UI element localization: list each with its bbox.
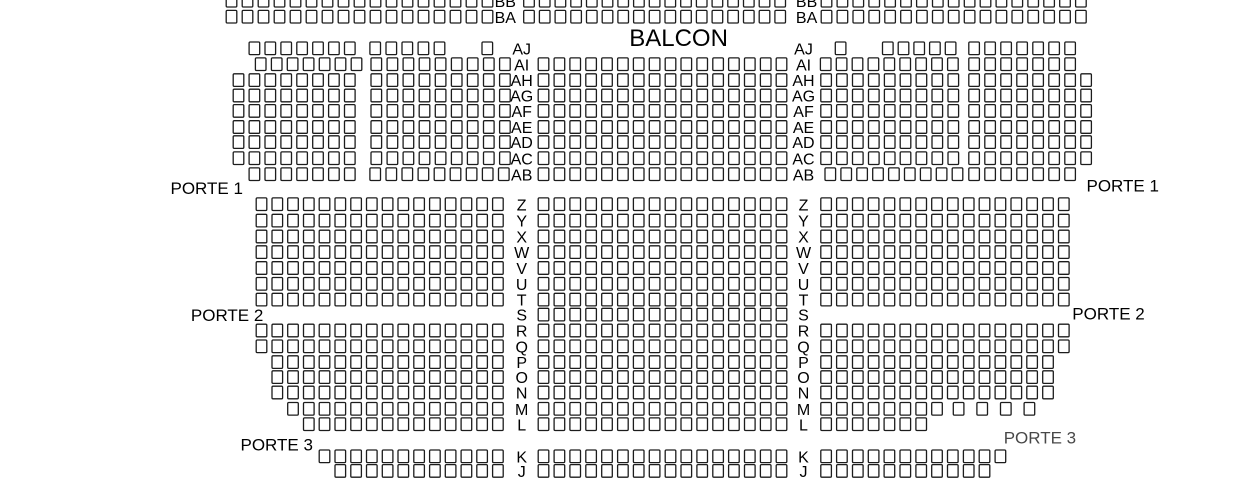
svg-text:Q: Q (515, 339, 527, 356)
svg-text:Z: Z (517, 197, 527, 214)
svg-text:AD: AD (511, 135, 533, 152)
svg-text:AC: AC (792, 151, 814, 168)
svg-text:S: S (516, 308, 527, 325)
svg-text:BA: BA (796, 10, 818, 27)
svg-text:PORTE 3: PORTE 3 (1004, 429, 1076, 448)
svg-text:L: L (799, 417, 808, 434)
svg-text:AB: AB (511, 167, 532, 184)
svg-text:Z: Z (799, 197, 809, 214)
svg-text:X: X (798, 230, 809, 247)
svg-text:V: V (798, 261, 809, 278)
svg-text:N: N (516, 386, 528, 403)
svg-text:R: R (516, 324, 528, 341)
svg-text:AJ: AJ (512, 41, 531, 58)
svg-text:BA: BA (495, 10, 517, 27)
svg-text:PORTE 2: PORTE 2 (191, 306, 263, 325)
svg-text:PORTE 1: PORTE 1 (171, 179, 243, 198)
svg-text:U: U (516, 277, 528, 294)
svg-text:W: W (514, 245, 530, 262)
svg-text:PORTE 3: PORTE 3 (241, 436, 313, 455)
svg-text:AF: AF (793, 104, 814, 121)
svg-text:PORTE 2: PORTE 2 (1072, 305, 1144, 324)
svg-text:V: V (516, 261, 527, 278)
svg-text:N: N (798, 386, 810, 403)
svg-text:AI: AI (514, 57, 529, 74)
svg-text:Q: Q (797, 339, 809, 356)
svg-text:AF: AF (511, 104, 532, 121)
svg-text:J: J (800, 464, 808, 480)
svg-text:PORTE 1: PORTE 1 (1087, 176, 1159, 195)
svg-text:Y: Y (798, 214, 809, 231)
svg-text:Y: Y (516, 214, 527, 231)
svg-text:BALCON: BALCON (629, 25, 728, 52)
svg-text:U: U (798, 277, 810, 294)
svg-text:AD: AD (792, 135, 814, 152)
svg-text:X: X (516, 230, 527, 247)
svg-text:J: J (518, 464, 526, 480)
svg-text:AI: AI (796, 57, 811, 74)
svg-text:R: R (798, 324, 810, 341)
svg-text:AB: AB (793, 167, 814, 184)
svg-text:AJ: AJ (794, 41, 813, 58)
svg-text:L: L (517, 417, 526, 434)
svg-text:W: W (796, 245, 812, 262)
svg-text:AC: AC (511, 151, 533, 168)
svg-text:S: S (798, 308, 809, 325)
